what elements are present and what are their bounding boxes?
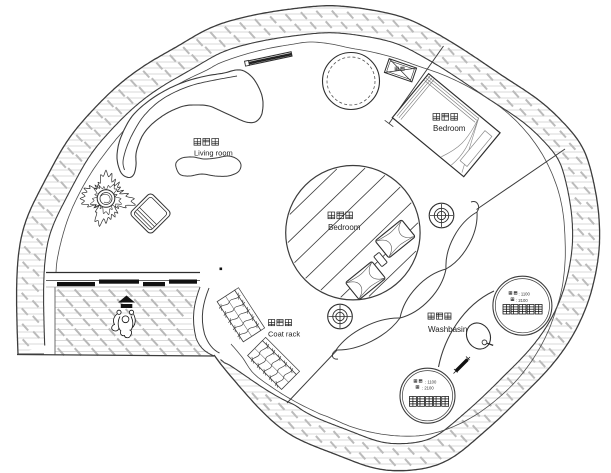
svg-text:: 1100: : 1100 (519, 292, 531, 297)
svg-text:Washbasin: Washbasin (428, 325, 467, 334)
svg-text:: 2100: : 2100 (516, 298, 528, 303)
svg-text:: 2100: : 2100 (422, 386, 434, 391)
svg-text:Living room: Living room (194, 149, 233, 158)
svg-text:: 1100: : 1100 (425, 380, 437, 385)
svg-text:Coat rack: Coat rack (268, 330, 300, 339)
svg-text:Bedroom: Bedroom (328, 223, 361, 232)
svg-text:Bedroom: Bedroom (433, 124, 466, 133)
